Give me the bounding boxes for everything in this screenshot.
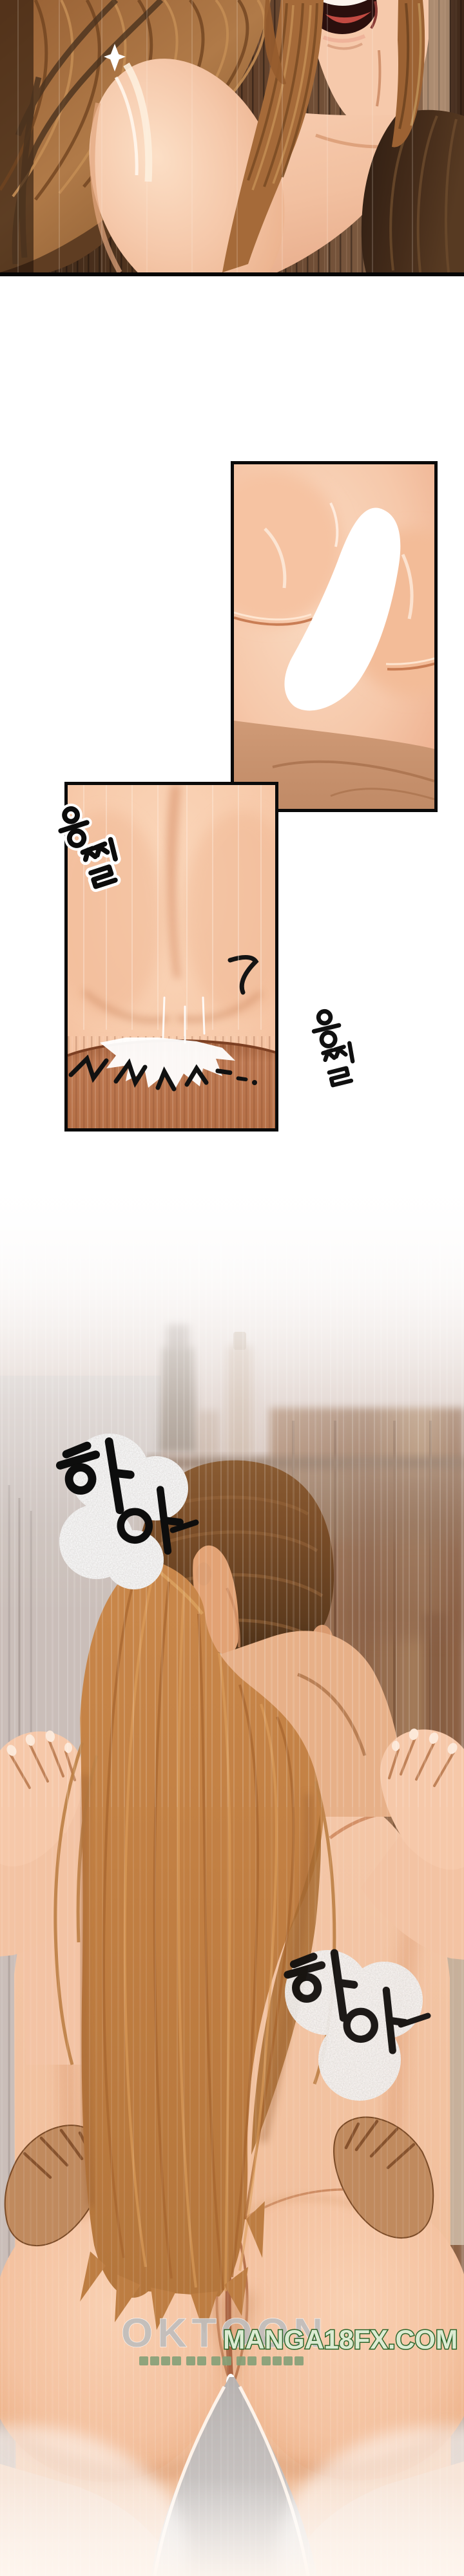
svg-text:MANGA18FX.COM: MANGA18FX.COM	[223, 2324, 458, 2354]
